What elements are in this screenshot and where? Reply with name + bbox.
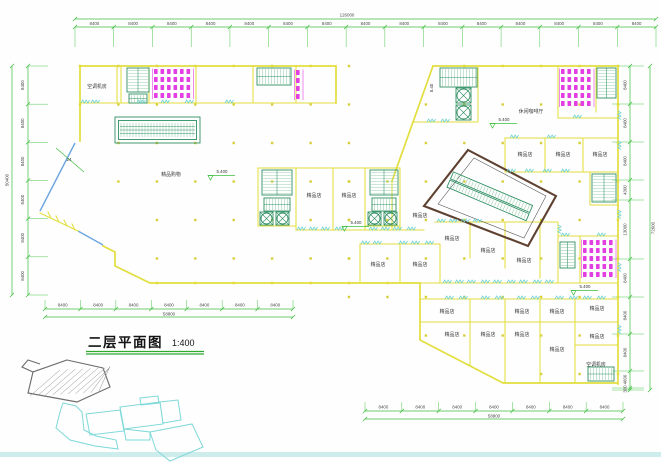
dimension-total-label: 58800	[488, 414, 501, 419]
dimension-total-label: 72600	[651, 221, 656, 234]
dimension-label: 8400	[623, 310, 628, 320]
toilet-fixture-cluster	[560, 69, 595, 108]
dimension-total-label: 58800	[163, 312, 176, 317]
dimension-label: 8400	[200, 303, 210, 308]
stair	[588, 367, 614, 381]
dimension-label: 8400	[438, 21, 448, 26]
column-dot	[425, 219, 427, 221]
site-context-buildings	[56, 396, 203, 461]
stair	[440, 68, 477, 87]
room-label: 精品店	[593, 151, 608, 158]
column-dot	[271, 103, 273, 105]
column-dot	[156, 180, 158, 182]
stair	[597, 68, 616, 98]
dimension-label: 8400	[20, 232, 25, 242]
dimension-label: 4300	[623, 185, 628, 195]
elevator-symbol	[260, 212, 273, 225]
room-label: 精品店	[481, 247, 496, 254]
column-dot	[425, 142, 427, 144]
room-label: 精品店	[371, 261, 386, 268]
elevation-label: 5.400	[217, 169, 229, 174]
column-dot	[194, 180, 196, 182]
elevator-symbol	[276, 212, 289, 225]
dimension-chains: 1260008400840084008400840084008400840084…	[5, 13, 659, 422]
elevator-symbol	[456, 88, 471, 103]
dimension-label: 8400	[623, 80, 628, 90]
dimension-label: 8400	[623, 273, 628, 283]
column-dot	[194, 257, 196, 259]
dimension-label: 8400	[58, 303, 68, 308]
dimension-label: 8400	[623, 118, 628, 128]
dimension-label: 8400	[600, 405, 610, 410]
room-label: 精品店	[515, 308, 530, 315]
dimension-label: 8400	[20, 156, 25, 166]
dimension-label: 8400	[129, 303, 139, 308]
cad-floor-plan-viewport: 1260008400840084008400840084008400840084…	[0, 0, 661, 464]
stair	[560, 242, 575, 268]
dimension-total-label: 126000	[340, 13, 355, 18]
dimension-label: 8400	[93, 303, 103, 308]
dimension-label: 8400	[20, 118, 25, 128]
elevation-label: 5.400	[580, 284, 592, 289]
floor-plan-canvas: 1260008400840084008400840084008400840084…	[0, 0, 661, 464]
dimension-label: 8400	[452, 405, 462, 410]
atrium-escalators	[447, 172, 533, 221]
dimension-label: 300	[623, 385, 628, 393]
dimension-label: 8400	[206, 21, 216, 26]
column-dot	[502, 180, 504, 182]
column-dot	[540, 180, 542, 182]
dimension-label: 8400	[526, 405, 536, 410]
column-dot	[156, 103, 158, 105]
dimension-label: 8400	[20, 80, 25, 90]
dimension-label: 8400	[89, 21, 99, 26]
dimension-label: 8400	[128, 21, 138, 26]
dimension-label: 8400	[593, 21, 603, 26]
drawing-title: 二层平面图	[88, 335, 163, 350]
room-label: 精品店	[440, 308, 455, 315]
column-dot	[425, 334, 427, 336]
column-dot	[271, 142, 273, 144]
site-hatch-lines	[30, 366, 110, 396]
toilet-fixture-cluster	[582, 240, 617, 279]
dimension-label: 8400	[623, 156, 628, 166]
room-label: 精品店	[550, 308, 565, 315]
elevator-symbol	[456, 105, 471, 120]
drawing-scale: 1:400	[172, 338, 195, 348]
column-dot	[502, 334, 504, 336]
toilet-fixture-cluster	[153, 69, 194, 100]
dimension-label: 8400	[563, 405, 573, 410]
room-label: 休闲咖啡厅	[519, 108, 544, 115]
column-dot	[348, 296, 350, 298]
dimension-label: 8400	[361, 21, 371, 26]
dimension-label: 8400	[283, 21, 293, 26]
room-label: 精品店	[307, 192, 322, 199]
column-dot	[425, 103, 427, 105]
column-dot	[348, 142, 350, 144]
column-dot	[233, 180, 235, 182]
room-label: 精品店	[518, 151, 533, 158]
column-dot	[309, 180, 311, 182]
column-dot	[194, 103, 196, 105]
column-dot	[540, 103, 542, 105]
elevator-symbol	[384, 212, 397, 225]
dimension-label: 8400	[415, 405, 425, 410]
stair	[372, 198, 396, 211]
room-label: 精品店	[550, 346, 565, 353]
stair	[262, 170, 292, 195]
column-dot	[578, 219, 580, 221]
stair	[257, 68, 291, 85]
column-dot	[425, 296, 427, 298]
dimension-label: 8400	[516, 21, 526, 26]
room-label: 精品店	[413, 261, 428, 268]
dimension-label: 8400	[270, 303, 280, 308]
column-dot	[233, 219, 235, 221]
column-dot	[502, 219, 504, 221]
room-label: 空调机房	[586, 361, 606, 368]
column-dot	[348, 65, 350, 67]
elevation-label: 5.400	[351, 220, 363, 225]
column-dot	[309, 219, 311, 221]
glazing-curtain-wall	[40, 143, 103, 245]
column-dot	[348, 180, 350, 182]
column-dot	[502, 103, 504, 105]
column-dot	[540, 142, 542, 144]
dimension-label: 8400	[379, 405, 389, 410]
elevator-symbol	[368, 212, 381, 225]
dimension-label: 8400	[322, 21, 332, 26]
column-dot	[117, 180, 119, 182]
column-dot	[117, 103, 119, 105]
column-dot	[348, 103, 350, 105]
stair	[592, 174, 616, 202]
column-dot	[502, 142, 504, 144]
elevation-label: 5.400	[499, 117, 511, 122]
column-dot	[463, 334, 465, 336]
dimension-label: 8400	[477, 21, 487, 26]
column-dot	[194, 219, 196, 221]
dimension-label: 8400	[244, 21, 254, 26]
dimension-label: 8400	[623, 347, 628, 357]
elevation-label: 5.40	[429, 83, 434, 92]
column-dot	[233, 142, 235, 144]
atrium-outline	[424, 150, 556, 246]
dimension-label: 8400	[235, 303, 245, 308]
room-label: 精品店	[515, 331, 530, 338]
room-label: 精品店	[590, 333, 605, 340]
dimension-label: 8400	[164, 303, 174, 308]
column-dot	[578, 103, 580, 105]
dimension-label: 8400	[554, 21, 564, 26]
dimension-label: 8400	[167, 21, 177, 26]
column-dot	[233, 257, 235, 259]
dimension-label: 8400	[489, 405, 499, 410]
dimension-label: 8400	[632, 21, 642, 26]
column-dot	[156, 219, 158, 221]
column-dot	[578, 296, 580, 298]
column-dot	[348, 257, 350, 259]
room-label: 精品店	[445, 235, 460, 242]
column-dot	[540, 296, 542, 298]
column-dot	[233, 103, 235, 105]
room-label: 精品店	[556, 151, 571, 158]
dimension-label: 8400	[20, 194, 25, 204]
column-dot	[463, 257, 465, 259]
column-dot	[271, 257, 273, 259]
central-atrium	[424, 150, 556, 246]
column-dot	[386, 257, 388, 259]
room-label: 精品店	[481, 331, 496, 338]
column-dot	[578, 180, 580, 182]
column-dot	[386, 296, 388, 298]
column-dot	[309, 257, 311, 259]
column-dot	[425, 180, 427, 182]
dimension-label: 8400	[20, 270, 25, 280]
stair	[264, 198, 290, 211]
column-dot	[156, 257, 158, 259]
escalator-hall	[115, 117, 200, 143]
dimension-label: 4600	[623, 374, 628, 384]
title-block: 二层平面图 1:400	[86, 335, 204, 354]
room-labels: 空调机房精品购物休闲咖啡厅精品店精品店精品店精品店精品店精品店精品店精品店精品店…	[87, 83, 607, 368]
column-dot	[578, 373, 580, 375]
room-label: 精品店	[590, 305, 605, 312]
room-label: 精品店	[517, 257, 532, 264]
column-dot	[463, 142, 465, 144]
dimension-label: 13000	[623, 223, 628, 236]
room-label: 精品店	[445, 331, 460, 338]
column-dot	[578, 334, 580, 336]
site-key-plan	[22, 360, 203, 461]
dimension-total-label: 50400	[5, 173, 10, 186]
column-dot	[502, 257, 504, 259]
room-label: 空调机房	[87, 83, 107, 90]
bottom-band	[0, 452, 661, 457]
column-dot	[309, 142, 311, 144]
slanted-entry-wall	[40, 212, 78, 231]
annotation-label: 24	[67, 157, 72, 162]
column-dot	[425, 257, 427, 259]
stair	[127, 68, 149, 92]
column-dot	[578, 142, 580, 144]
room-label: 精品店	[342, 192, 357, 199]
column-dot	[309, 103, 311, 105]
room-label: 精品店	[413, 212, 428, 219]
room-label: 精品购物	[161, 171, 181, 178]
dimension-label: 8400	[399, 21, 409, 26]
